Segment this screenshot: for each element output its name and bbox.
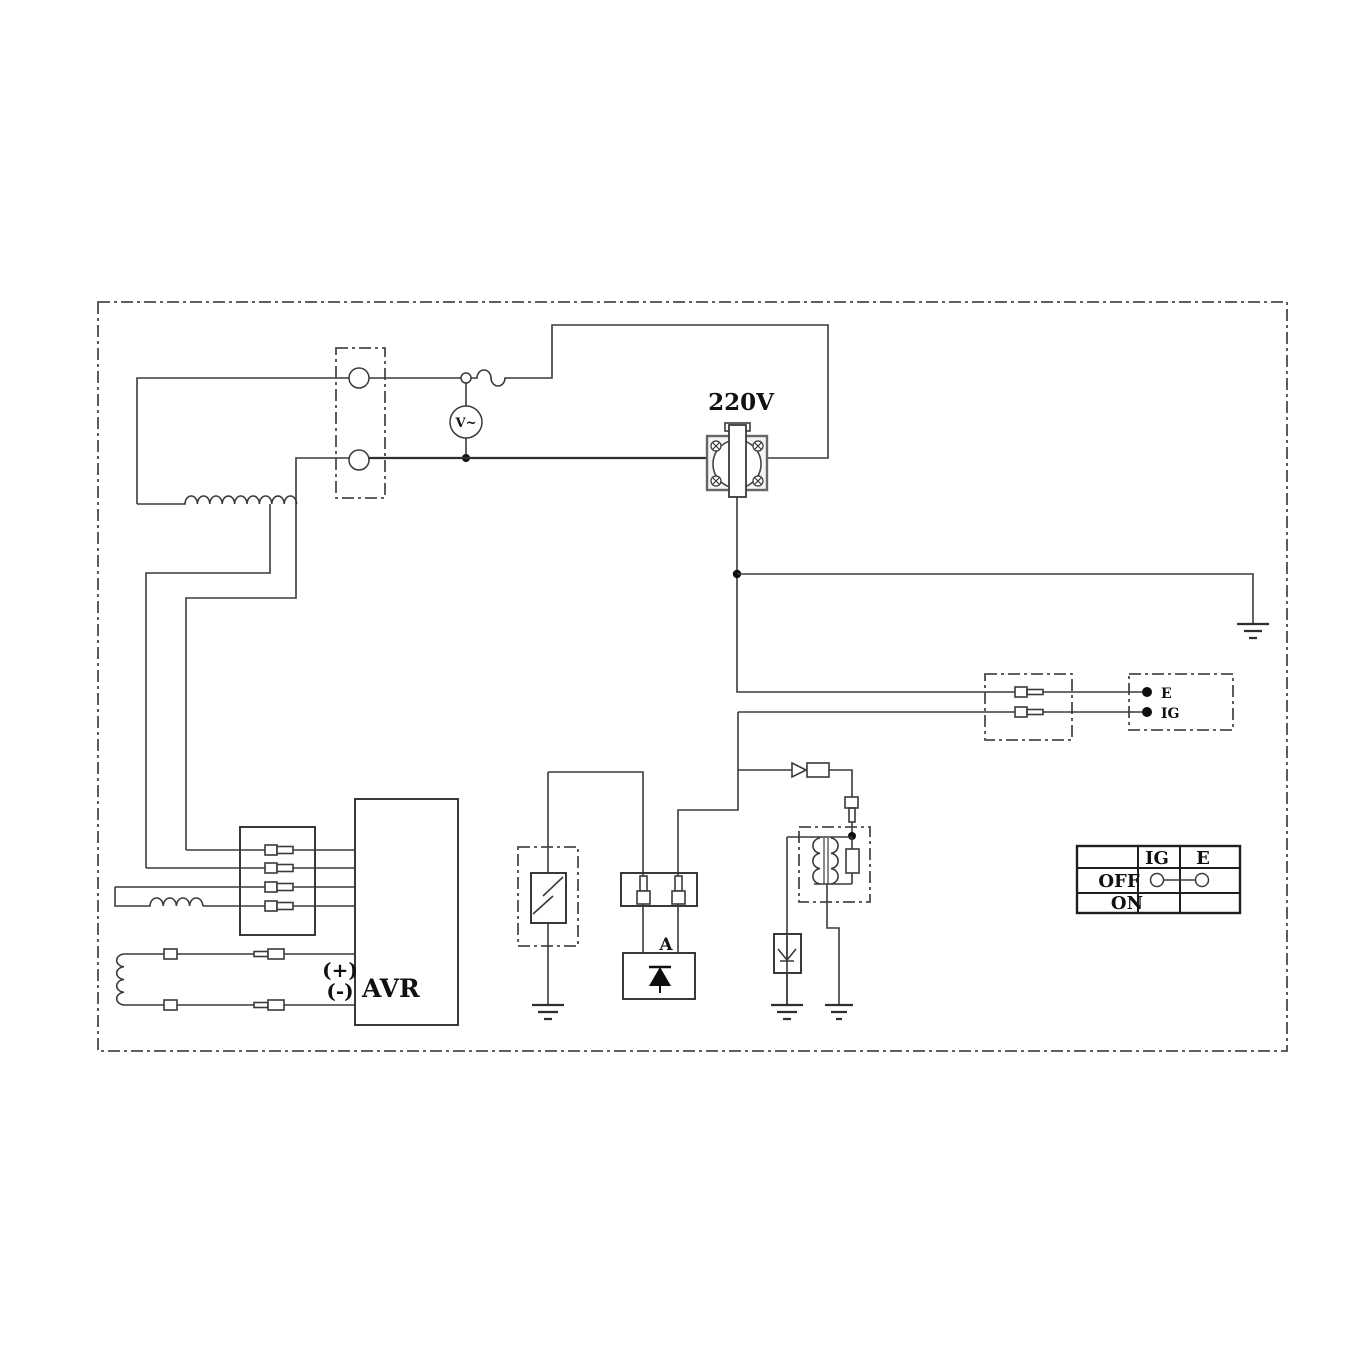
secondary-winding bbox=[831, 838, 838, 884]
wire-neutral-left bbox=[186, 458, 349, 850]
bullet-connector bbox=[1015, 707, 1027, 717]
avr-section: AVR (+) (-) bbox=[115, 799, 458, 1025]
voltmeter-label: V~ bbox=[455, 416, 477, 431]
neutral-wire bbox=[186, 458, 707, 850]
breaker-terminal-bottom bbox=[349, 450, 369, 470]
condenser-hatch bbox=[533, 877, 563, 914]
wire-condenser-to-a bbox=[548, 772, 643, 876]
a-connector-pins bbox=[637, 876, 685, 904]
ground-symbol-plug bbox=[771, 1005, 803, 1019]
exciter-coil bbox=[115, 887, 203, 906]
primary-winding bbox=[813, 838, 820, 884]
bullet-connector-pin bbox=[1027, 690, 1043, 695]
main-winding bbox=[137, 496, 297, 868]
ground-symbol-coil bbox=[825, 1005, 853, 1019]
ignition-circuit bbox=[738, 763, 870, 1019]
main-winding-coil bbox=[137, 496, 297, 504]
table-col-e: E bbox=[1196, 848, 1210, 869]
wire-diode-out bbox=[829, 770, 852, 797]
ground-symbol-condenser bbox=[532, 1005, 564, 1019]
exciter-winding bbox=[115, 887, 203, 906]
diode-icon bbox=[792, 763, 806, 777]
socket-220v: 220V bbox=[707, 389, 775, 497]
table-row-off: OFF bbox=[1098, 871, 1139, 892]
terminal-e-label: E bbox=[1161, 686, 1172, 702]
wire-ig-down bbox=[678, 712, 738, 876]
table-row-on: ON bbox=[1111, 893, 1143, 914]
terminal-ig-dot bbox=[1142, 707, 1152, 717]
inline-component bbox=[807, 763, 829, 777]
earth-rail bbox=[733, 497, 1269, 692]
bullet-connector-pin bbox=[849, 808, 855, 822]
table-col-ig: IG bbox=[1145, 848, 1169, 869]
ignition-coil bbox=[787, 837, 859, 884]
ig-line: IG bbox=[738, 706, 1180, 722]
rectifier-label: A bbox=[658, 935, 673, 955]
wire-socket-down-e bbox=[737, 497, 1015, 692]
bullet-connector bbox=[1015, 687, 1027, 697]
bullet-connector bbox=[845, 797, 858, 808]
charge-connectors bbox=[164, 949, 284, 1010]
resistor bbox=[846, 849, 859, 873]
wiring-diagram-canvas: V~ 220V bbox=[0, 0, 1352, 1352]
breaker-terminal-block bbox=[336, 348, 385, 498]
voltmeter: V~ bbox=[450, 383, 482, 462]
condenser-body bbox=[531, 873, 566, 923]
rectifier-diode-icon bbox=[649, 967, 671, 993]
charge-coil bbox=[117, 954, 124, 1005]
avr-connector-pins bbox=[265, 845, 293, 911]
ground-symbol-main bbox=[1237, 624, 1269, 638]
coil-core bbox=[824, 838, 828, 884]
wire-top-left bbox=[137, 378, 349, 504]
terminal-e-dot bbox=[1142, 687, 1152, 697]
charge-circuit: A bbox=[518, 772, 697, 1019]
avr-connector-block bbox=[240, 827, 315, 935]
charge-winding bbox=[117, 949, 355, 1010]
socket-blade bbox=[729, 425, 746, 497]
bullet-connector-pin bbox=[1027, 710, 1043, 715]
avr-label: AVR bbox=[361, 974, 420, 1003]
diagram-border bbox=[98, 302, 1287, 1051]
harness-connector-box bbox=[985, 674, 1072, 740]
breaker-squiggle-wire bbox=[471, 325, 828, 458]
switch-table: IG E OFF ON bbox=[1077, 846, 1240, 914]
wire-earth-right bbox=[737, 574, 1253, 623]
breaker-terminal-top bbox=[349, 368, 369, 388]
avr-minus-label: (-) bbox=[326, 979, 353, 1003]
terminal-ig-label: IG bbox=[1161, 706, 1180, 722]
main-winding-tap-wire bbox=[146, 504, 270, 868]
wiring-diagram-page: V~ 220V bbox=[0, 0, 1352, 1352]
open-node bbox=[461, 373, 471, 383]
socket-voltage-label: 220V bbox=[708, 389, 775, 416]
e-line: E bbox=[1015, 686, 1172, 702]
spark-gap-icon bbox=[778, 936, 796, 961]
switch-terminal-box bbox=[1129, 674, 1233, 730]
